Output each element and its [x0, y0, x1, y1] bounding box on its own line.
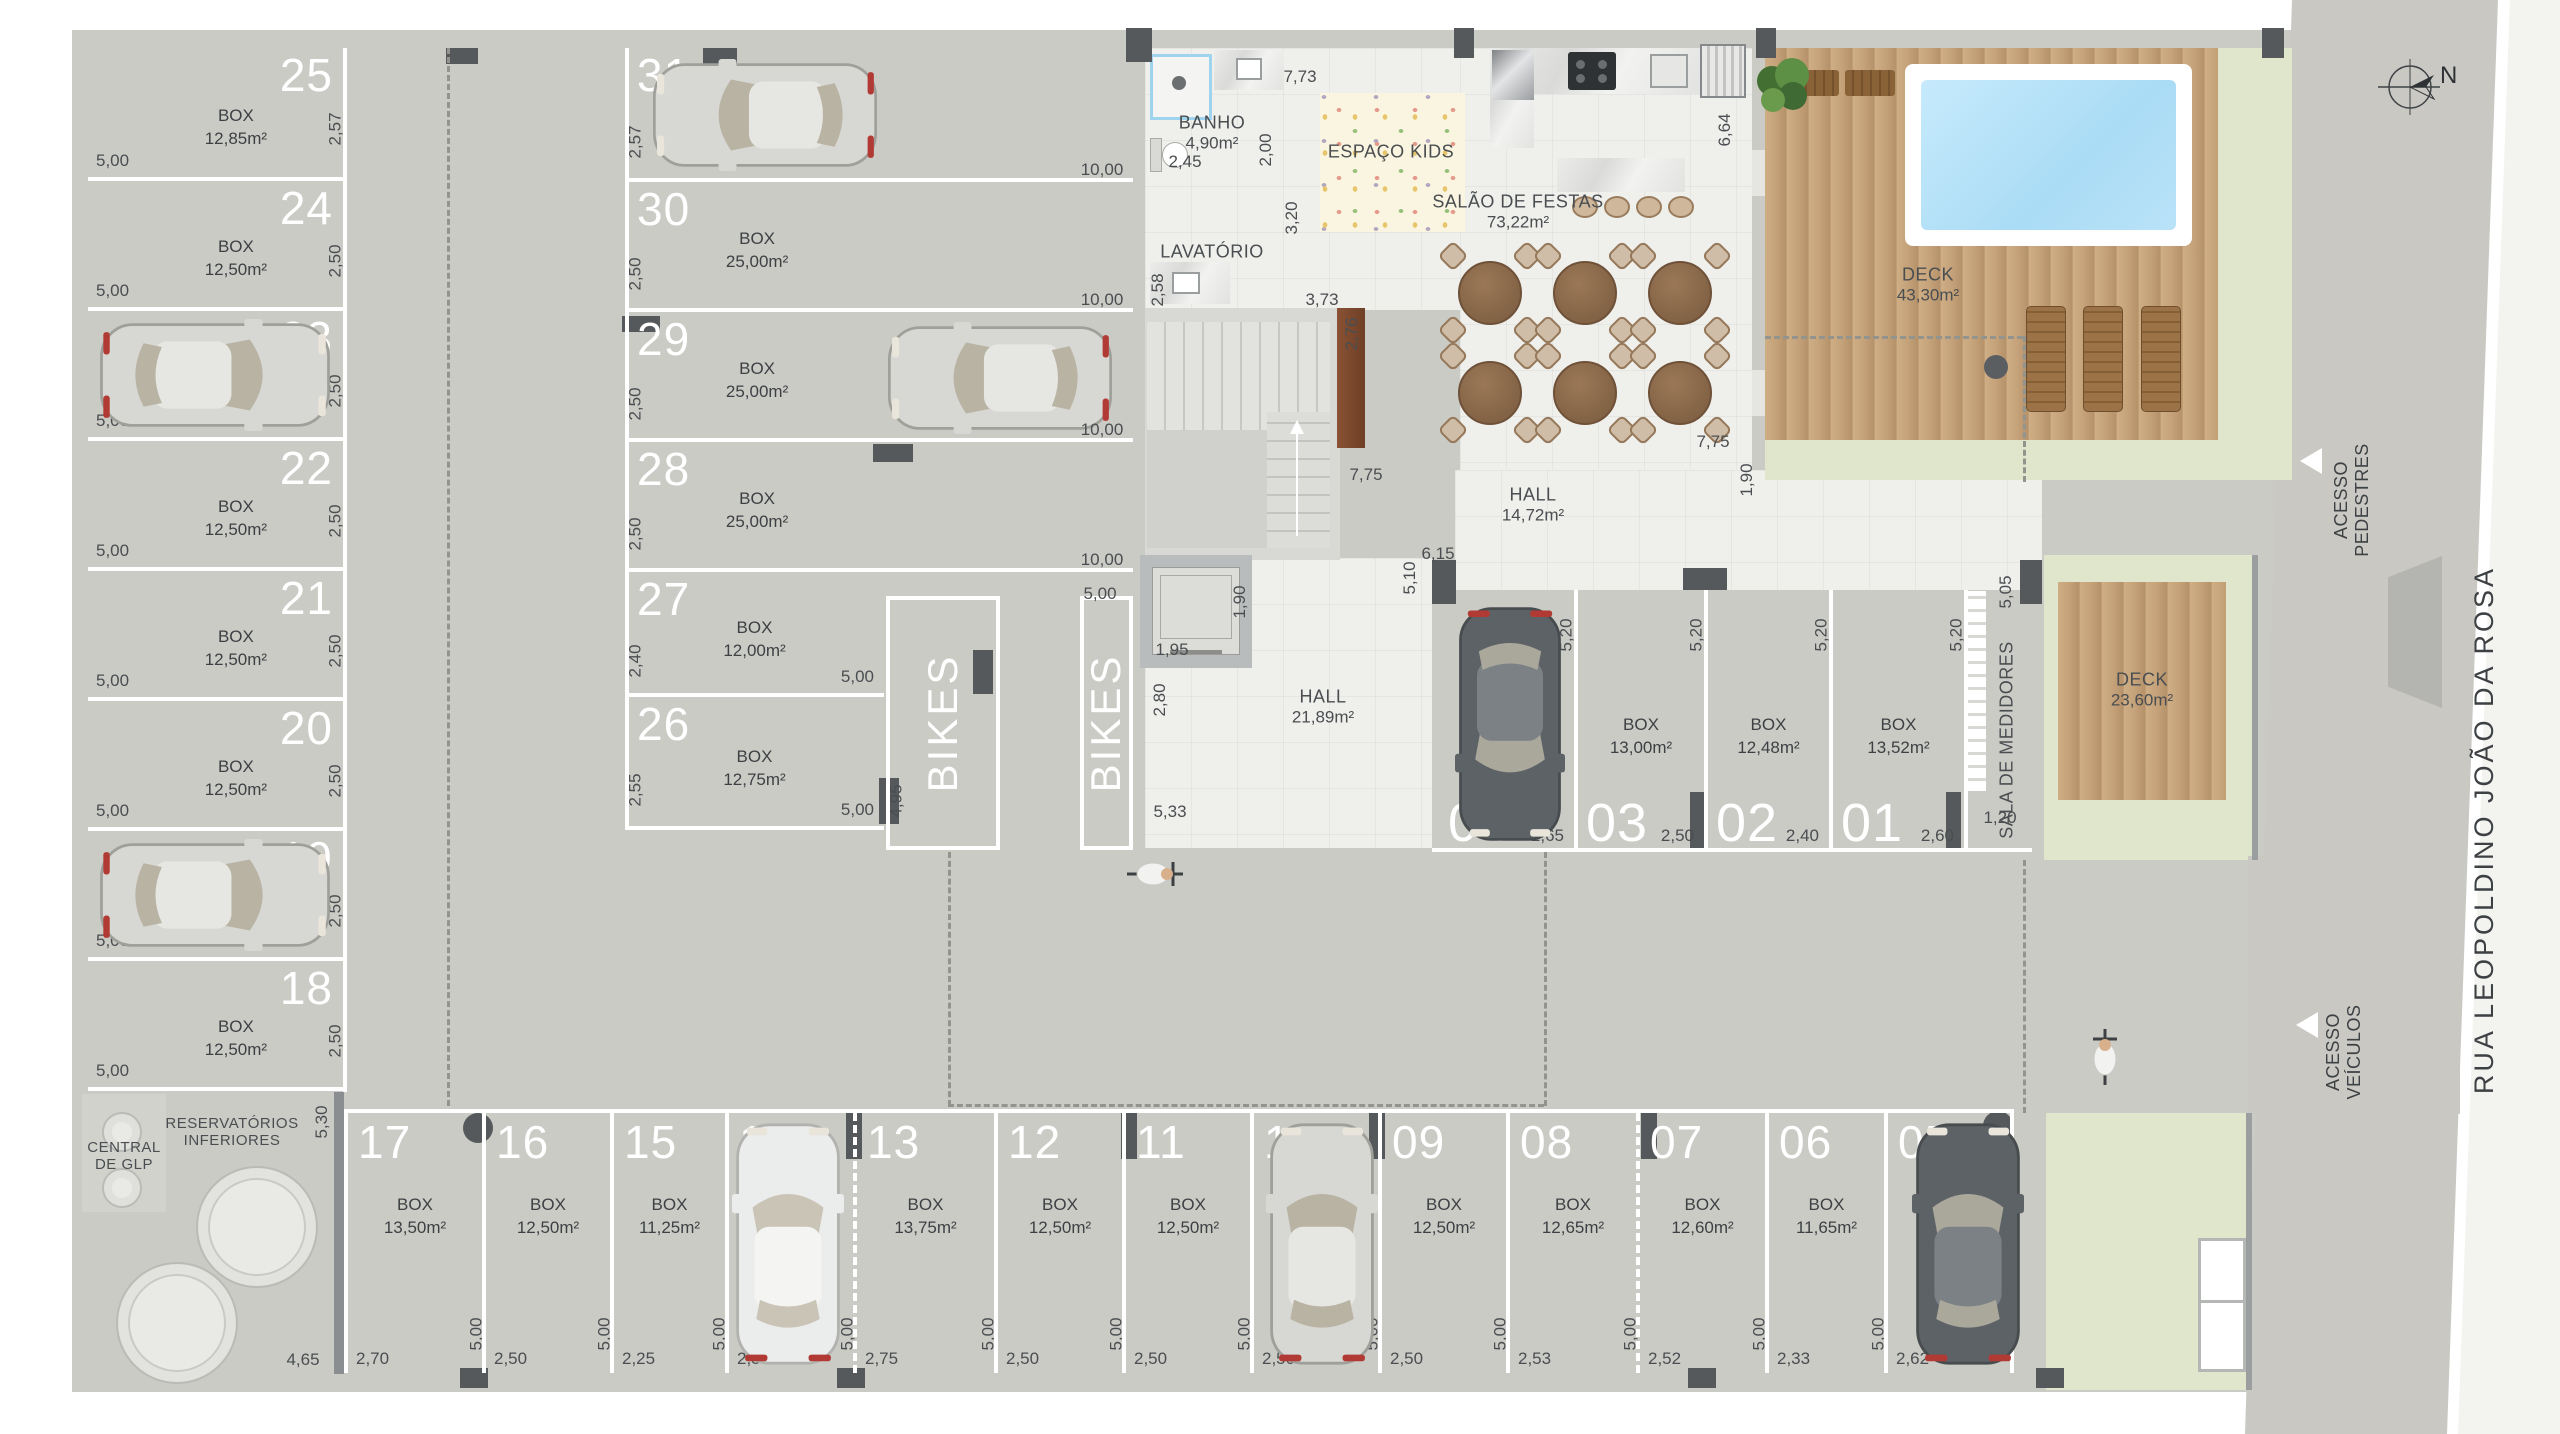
box-area: 12,60m²	[1671, 1217, 1733, 1240]
spot-width-dim: 2,50	[1390, 1349, 1423, 1369]
dim-d276: 2,76	[1342, 317, 1362, 350]
dim-d533: 5,33	[1153, 802, 1186, 822]
dim-d1000b: 10,00	[1081, 290, 1124, 310]
dash-drive-bottom	[948, 1104, 1544, 1107]
parking-spot-01: 01BOX13,52m²2,605,20	[1833, 590, 1968, 852]
spot04-left-wall-a	[1414, 578, 1432, 710]
spot-width-dim: 5,00	[96, 281, 129, 301]
spot-depth-dim-wrap: 2,50	[325, 616, 347, 686]
spot-width-dim: 2,50	[494, 1349, 527, 1369]
dim-d465: 4,65	[286, 1350, 319, 1370]
box-label: BOX	[1029, 1194, 1091, 1217]
lawn-top-right	[2210, 48, 2292, 480]
bikes-right-dim: 5,00	[1083, 584, 1116, 604]
column-21	[2036, 1368, 2064, 1388]
spot-number: 15	[624, 1119, 677, 1165]
column-6	[2262, 28, 2284, 58]
box-area: 12,48m²	[1737, 737, 1799, 760]
table-top	[1553, 261, 1617, 325]
parking-spot-11: 11BOX12,50m²2,505,00	[1122, 1113, 1250, 1373]
spot-length-dim: 5,00	[841, 667, 874, 687]
dim-d505: 5,05	[1996, 575, 2016, 608]
banho-label-area: 4,90m²	[1179, 134, 1246, 154]
spot-number: 29	[637, 316, 690, 362]
dash-drive-left	[948, 852, 951, 1106]
spot-depth-dim: 2,50	[626, 257, 646, 290]
box-label: BOX	[1157, 1194, 1219, 1217]
spot-length-dim: 5,20	[1947, 618, 1967, 651]
compass-north-icon	[2378, 55, 2474, 119]
dim-d530: 5,30	[312, 1105, 332, 1138]
box-area: 12,50m²	[205, 779, 267, 802]
spot-box-label: BOX12,65m²	[1542, 1194, 1604, 1240]
stairwell-bottom-wall-b	[1320, 546, 1343, 559]
spot-box-label: BOX12,75m²	[723, 746, 785, 792]
glp-wall-top	[82, 1092, 342, 1106]
party-table-6	[1638, 351, 1722, 435]
party-table-4	[1448, 351, 1532, 435]
box-label: BOX	[205, 236, 267, 259]
column-4	[1454, 28, 1474, 58]
spot-depth-dim: 2,57	[626, 125, 646, 158]
spot-box-label: BOX11,65m²	[1796, 1194, 1857, 1240]
spot-depth-dim: 2,50	[326, 1025, 346, 1058]
car-spot-29	[884, 322, 1116, 434]
box-area: 25,00m²	[726, 511, 788, 534]
dim-d664: 6,64	[1715, 113, 1735, 146]
spot-number: 21	[280, 575, 333, 621]
cyclist-garage	[1125, 858, 1185, 890]
outer-right-top	[2282, 28, 2296, 480]
spot-box-label: BOX25,00m²	[726, 228, 788, 274]
central-glp-label-name2: DE GLP	[87, 1156, 161, 1173]
box-label: BOX	[726, 358, 788, 381]
spot-box-label: BOX25,00m²	[726, 488, 788, 534]
party-table-1	[1448, 251, 1532, 335]
spot-box-label: BOX12,50m²	[517, 1194, 579, 1240]
spot-depth-dim: 2,55	[626, 774, 646, 807]
dim-d775a: 7,75	[1349, 465, 1382, 485]
box-area: 13,52m²	[1867, 737, 1929, 760]
box-label: BOX	[1671, 1194, 1733, 1217]
spot-depth-dim-wrap: 2,40	[625, 626, 647, 696]
floor-plan: 25BOX12,85m²5,002,5724BOX12,50m²5,002,50…	[0, 0, 2560, 1434]
elevator-wall-top	[1140, 555, 1252, 567]
dash-deck-vertical	[2023, 336, 2026, 482]
car-spot-04	[1455, 603, 1565, 845]
parking-spot-25: 25BOX12,85m²5,002,57	[88, 48, 343, 181]
spot-width-dim: 2,50	[1134, 1349, 1167, 1369]
spot-number: 20	[280, 705, 333, 751]
elevator-cab-inner	[1160, 575, 1232, 639]
access-veh-1: ACESSO	[2323, 1013, 2343, 1091]
box-label: BOX	[894, 1194, 956, 1217]
box-area: 12,00m²	[723, 640, 785, 663]
dim-d280: 2,80	[1150, 683, 1170, 716]
car-spot-19	[96, 839, 334, 951]
spot-width-dim: 2,52	[1648, 1349, 1681, 1369]
box-label: BOX	[1867, 714, 1929, 737]
spot-number: 02	[1716, 796, 1778, 850]
box-area: 12,50m²	[205, 259, 267, 282]
kitchen-sink	[1650, 54, 1688, 88]
spot-depth-dim-wrap: 2,50	[625, 239, 647, 309]
parking-spot-28: 28BOX25,00m²2,50	[625, 442, 1133, 572]
spot-width-dim: 2,50	[1006, 1349, 1039, 1369]
garden-gate	[2198, 1238, 2246, 1372]
deck-pool-label-name: DECK	[1897, 265, 1959, 286]
spot-depth-dim: 2,50	[326, 635, 346, 668]
stairwell-top-wall	[1133, 308, 1343, 322]
box-label: BOX	[205, 1016, 267, 1039]
dim-d615: 6,15	[1421, 544, 1454, 564]
island-stool-3	[1636, 196, 1662, 218]
box-label: BOX	[639, 1194, 700, 1217]
dim-d320: 3,20	[1282, 201, 1302, 234]
spot-box-label: BOX12,50m²	[205, 496, 267, 542]
sun-lounger-3	[2141, 306, 2181, 412]
parking-spot-22: 22BOX12,50m²5,002,50	[88, 441, 343, 571]
outer-bottom-light	[68, 1392, 2292, 1402]
central-glp-label-name: CENTRAL	[87, 1139, 161, 1156]
column-5	[1756, 28, 1776, 58]
parking-spot-26: 26BOX12,75m²2,555,00	[625, 697, 884, 830]
spot-length-dim-wrap: 5,20	[1946, 600, 1968, 670]
spot-number: 16	[496, 1119, 549, 1165]
sidewalk-ramp	[2388, 556, 2442, 708]
spot-box-label: BOX13,75m²	[894, 1194, 956, 1240]
outer-bottom	[68, 1374, 2292, 1392]
spot-box-label: BOX12,60m²	[1671, 1194, 1733, 1240]
box-label: BOX	[384, 1194, 446, 1217]
outer-left-light	[58, 18, 68, 1402]
column-1	[446, 48, 478, 64]
spot-length-dim: 5,20	[1687, 618, 1707, 651]
spot-depth-dim: 2,50	[326, 765, 346, 798]
table-top	[1648, 361, 1712, 425]
spot-depth-dim: 2,50	[326, 245, 346, 278]
parking-spot-27: 27BOX12,00m²2,405,00	[625, 572, 884, 697]
spot-number: 13	[867, 1119, 920, 1165]
box-label: BOX	[205, 626, 267, 649]
spot-box-label: BOX12,50m²	[1413, 1194, 1475, 1240]
access-ped-1: ACESSO	[2331, 461, 2351, 539]
reservatorios-label-name2: INFERIORES	[165, 1132, 298, 1149]
box-area: 12,50m²	[205, 519, 267, 542]
parking-spot-30: 30BOX25,00m²2,50	[625, 182, 1133, 312]
glp-cylinder-2	[102, 1168, 142, 1208]
elevator-wall-left	[1140, 555, 1152, 667]
spot-number: 22	[280, 445, 333, 491]
spot-width-dim: 2,53	[1518, 1349, 1551, 1369]
dim-d190b: 1,90	[1230, 585, 1250, 618]
reservoir-tank-2	[116, 1262, 238, 1384]
spot-length-dim: 5,20	[1812, 618, 1832, 651]
box-area: 25,00m²	[726, 251, 788, 274]
spot-number: 06	[1779, 1119, 1832, 1165]
spot-width-dim: 2,75	[865, 1349, 898, 1369]
parking-spot-20: 20BOX12,50m²5,002,50	[88, 701, 343, 831]
deck-lawn-label-area: 23,60m²	[2111, 691, 2173, 711]
box-label: BOX	[726, 228, 788, 251]
spot-depth-dim-wrap: 2,50	[325, 1006, 347, 1076]
bikes-left-dim-wrap: 4,95	[886, 766, 908, 836]
spot-depth-dim-wrap: 2,50	[625, 369, 647, 439]
hall-upper-label: HALL14,72m²	[1502, 485, 1564, 526]
reservatorio-right-wall	[334, 1092, 344, 1374]
dim-d258: 2,58	[1148, 273, 1168, 306]
deck-pool-label: DECK43,30m²	[1897, 265, 1959, 306]
spot04-left-wall-b	[1414, 792, 1432, 852]
spot-number: 12	[1008, 1119, 1061, 1165]
parking-spot-02: 02BOX12,48m²2,405,20	[1708, 590, 1833, 852]
spot-number: 17	[358, 1119, 411, 1165]
access-veiculos-label: ACESSOVEÍCULOS	[2323, 1004, 2365, 1099]
reservatorios-label: RESERVATÓRIOSINFERIORES	[165, 1115, 298, 1149]
dim-d773: 7,73	[1283, 67, 1316, 87]
spot-width-dim: 5,00	[96, 671, 129, 691]
vehicle-arrow-icon	[2296, 1012, 2318, 1038]
fence-right-mid	[2252, 555, 2258, 860]
bench-2	[1845, 70, 1895, 96]
spot-number: 30	[637, 186, 690, 232]
dim-d1000a: 10,00	[1081, 160, 1124, 180]
dim-d200: 2,00	[1256, 133, 1276, 166]
spot-width-dim: 2,60	[1921, 826, 1954, 846]
banho-sink	[1236, 58, 1262, 80]
access-ped-2: PEDESTRES	[2352, 443, 2372, 557]
box-area: 13,75m²	[894, 1217, 956, 1240]
burner-3	[1598, 74, 1607, 83]
spot-box-label: BOX13,52m²	[1867, 714, 1929, 760]
stairs-lower-landing	[1147, 430, 1267, 548]
sun-lounger-1	[2026, 306, 2066, 412]
box-area: 12,50m²	[1413, 1217, 1475, 1240]
spot-number: 07	[1650, 1119, 1703, 1165]
spot-box-label: BOX25,00m²	[726, 358, 788, 404]
box-label: BOX	[726, 488, 788, 511]
box-area: 13,50m²	[384, 1217, 446, 1240]
street-name-label: RUA LEOPOLDINO JOÃO DA ROSA	[2469, 430, 2505, 1230]
spot-width-dim: 2,33	[1777, 1349, 1810, 1369]
bikes-label-left: BIKES	[919, 654, 967, 793]
dim-d510: 5,10	[1400, 561, 1420, 594]
hall-lower-label: HALL21,89m²	[1292, 687, 1354, 728]
spot-number: 26	[637, 701, 690, 747]
spot-width-dim: 5,00	[96, 541, 129, 561]
amenity-left-wall	[1133, 48, 1147, 560]
spot-box-label: BOX13,00m²	[1610, 714, 1672, 760]
dash-deck-horizontal	[1765, 336, 2023, 339]
spot-depth-dim-wrap: 2,50	[325, 486, 347, 556]
burner-1	[1598, 60, 1607, 69]
pedestrian-arrow-icon	[2300, 448, 2322, 474]
box-area: 12,65m²	[1542, 1217, 1604, 1240]
box-area: 12,75m²	[723, 769, 785, 792]
reservatorios-label-name: RESERVATÓRIOS	[165, 1115, 298, 1132]
spot-number: 25	[280, 52, 333, 98]
box-area: 13,00m²	[1610, 737, 1672, 760]
stairs-up-arrow	[1288, 418, 1306, 538]
hall-upper-label-name: HALL	[1502, 485, 1564, 506]
spot-depth-dim-wrap: 2,55	[625, 755, 647, 825]
salao-label-name: SALÃO DE FESTAS	[1432, 192, 1603, 213]
table-top	[1648, 261, 1712, 325]
parking-spot-06: 06BOX11,65m²2,335,00	[1765, 1113, 1884, 1373]
box-area: 12,50m²	[517, 1217, 579, 1240]
spot-width-dim: 2,70	[356, 1349, 389, 1369]
outer-top	[60, 28, 2292, 48]
car-spot-31	[649, 59, 881, 171]
box-area: 12,50m²	[1029, 1217, 1091, 1240]
shower-head	[1172, 76, 1186, 90]
deck-lawn-label: DECK23,60m²	[2111, 670, 2173, 711]
dash-lawn-vertical	[2023, 860, 2026, 1113]
spot-box-label: BOX13,50m²	[384, 1194, 446, 1240]
burner-0	[1576, 60, 1585, 69]
spot-depth-dim: 2,50	[626, 387, 646, 420]
spot-number: 28	[637, 446, 690, 492]
island-counter	[1557, 158, 1685, 192]
hall-bottom-wall	[1145, 832, 1377, 846]
box-label: BOX	[205, 105, 267, 128]
box-label: BOX	[517, 1194, 579, 1217]
spot-depth-dim-wrap: 2,57	[325, 94, 347, 164]
spot-depth-dim-wrap: 2,57	[625, 107, 647, 177]
hall-lower-label-area: 21,89m²	[1292, 708, 1354, 728]
spot-depth-dim-wrap: 2,50	[625, 499, 647, 569]
column-11	[2020, 560, 2042, 604]
parking-spot-08: 08BOX12,65m²2,535,00	[1506, 1113, 1636, 1373]
glp-wall-bottom	[82, 1204, 166, 1216]
spot-width-dim: 5,00	[96, 1061, 129, 1081]
cyclist-entrance	[2089, 1027, 2121, 1087]
dim-d120: 1,20	[1983, 808, 2016, 828]
box-label: BOX	[1737, 714, 1799, 737]
salao-door-gap-2	[1752, 370, 1765, 416]
dash-aisle-vertical	[447, 48, 450, 1106]
spot-number: 03	[1586, 796, 1648, 850]
box-area: 12,50m²	[205, 1039, 267, 1062]
car-spot-14	[732, 1119, 844, 1369]
reservoir-tank-1	[196, 1166, 318, 1288]
box-label: BOX	[1610, 714, 1672, 737]
spot-box-label: BOX12,50m²	[1157, 1194, 1219, 1240]
box-area: 11,25m²	[639, 1217, 700, 1240]
spot-number: 27	[637, 576, 690, 622]
box-label: BOX	[1542, 1194, 1604, 1217]
burner-2	[1576, 74, 1585, 83]
spot-depth-dim: 2,50	[626, 517, 646, 550]
spot-box-label: BOX12,85m²	[205, 105, 267, 151]
dim-d373: 3,73	[1305, 290, 1338, 310]
outer-left	[68, 28, 88, 1392]
spot-width-dim: 5,00	[96, 151, 129, 171]
box-area: 11,65m²	[1796, 1217, 1857, 1240]
fridge	[1492, 50, 1534, 100]
spot-length-dim: 5,00	[841, 800, 874, 820]
spot-depth-dim-wrap: 2,50	[325, 226, 347, 296]
spot-number: 09	[1392, 1119, 1445, 1165]
central-glp-label: CENTRALDE GLP	[87, 1139, 161, 1173]
salao-label: SALÃO DE FESTAS73,22m²	[1432, 192, 1603, 233]
spot-box-label: BOX12,50m²	[1029, 1194, 1091, 1240]
lavatorio-label: LAVATÓRIO	[1160, 242, 1264, 263]
bikes-left-dim: 4,95	[887, 784, 907, 817]
table-top	[1458, 361, 1522, 425]
dim-d245: 2,45	[1168, 152, 1201, 172]
box-label: BOX	[205, 756, 267, 779]
party-table-5	[1543, 351, 1627, 435]
box-label: BOX	[1413, 1194, 1475, 1217]
parking-spot-07: 07BOX12,60m²2,525,00	[1636, 1113, 1765, 1373]
corridor-deck-wall	[1760, 470, 2042, 484]
spot-width-dim: 2,25	[622, 1349, 655, 1369]
spot-depth-dim: 2,50	[326, 505, 346, 538]
table-top	[1458, 261, 1522, 325]
inner-row-top-wall	[1432, 575, 2042, 591]
spot-box-label: BOX11,25m²	[639, 1194, 700, 1240]
box-area: 12,50m²	[1157, 1217, 1219, 1240]
car-spot-10	[1266, 1119, 1378, 1369]
spot-number: 18	[280, 965, 333, 1011]
access-veh-2: VEÍCULOS	[2344, 1004, 2364, 1099]
spot-box-label: BOX12,50m²	[205, 756, 267, 802]
parking-spot-18: 18BOX12,50m²5,002,50	[88, 961, 343, 1091]
box-label: BOX	[1796, 1194, 1857, 1217]
hall-upper-label-area: 14,72m²	[1502, 506, 1564, 526]
fence-right-bottom	[2246, 1113, 2252, 1390]
bikes-label-right: BIKES	[1082, 654, 1130, 793]
access-pedestres-label: ACESSOPEDESTRES	[2331, 443, 2373, 557]
salao-label-area: 73,22m²	[1432, 213, 1603, 233]
cooktop	[1568, 52, 1616, 90]
dim-d1000d: 10,00	[1081, 550, 1124, 570]
spot-number: 24	[280, 185, 333, 231]
dash-drive-right	[1544, 852, 1547, 1106]
spot-box-label: BOX12,48m²	[1737, 714, 1799, 760]
deck-side-table	[1984, 355, 2008, 379]
box-area: 25,00m²	[726, 381, 788, 404]
spot-number: 11	[1136, 1119, 1186, 1165]
box-label: BOX	[205, 496, 267, 519]
column-10	[1683, 568, 1727, 590]
spot-width-dim: 5,00	[96, 801, 129, 821]
spot-number: 01	[1841, 796, 1903, 850]
deck-pool-label-area: 43,30m²	[1897, 286, 1959, 306]
espaco-kids-label: ESPAÇO KIDS	[1328, 142, 1454, 163]
spot-number: 08	[1520, 1119, 1573, 1165]
outer-top-light	[60, 18, 2296, 28]
parking-spot-21: 21BOX12,50m²5,002,50	[88, 571, 343, 701]
parking-spot-03: 03BOX13,00m²2,505,20	[1578, 590, 1708, 852]
dim-d195: 1,95	[1155, 640, 1188, 660]
spot-width-dim: 2,50	[1661, 826, 1694, 846]
spot-depth-dim: 2,40	[626, 645, 646, 678]
spot-length-dim-wrap: 5,20	[1811, 600, 1833, 670]
box-area: 12,50m²	[205, 649, 267, 672]
parking-spot-09: 09BOX12,50m²2,505,00	[1378, 1113, 1506, 1373]
parking-spot-16: 16BOX12,50m²2,505,00	[482, 1113, 610, 1373]
island-stool-4	[1668, 196, 1694, 218]
parking-spot-13: 13BOX13,75m²2,755,00	[853, 1113, 994, 1373]
banho-label: BANHO4,90m²	[1179, 113, 1246, 154]
box-label: BOX	[723, 617, 785, 640]
hall-lower-label-name: HALL	[1292, 687, 1354, 708]
spot-box-label: BOX12,50m²	[205, 236, 267, 282]
table-top	[1553, 361, 1617, 425]
dim-d1000c: 10,00	[1081, 420, 1124, 440]
